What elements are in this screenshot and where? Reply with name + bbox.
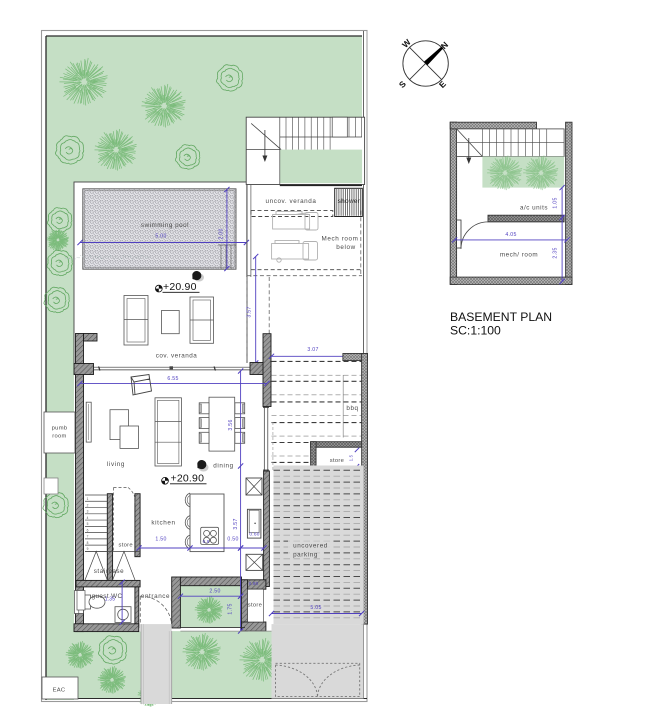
svg-text:store: store	[330, 458, 344, 464]
svg-text:3: 3	[87, 510, 89, 514]
svg-text:4: 4	[87, 516, 89, 520]
svg-text:cov. veranda: cov. veranda	[156, 353, 198, 360]
svg-text:SC:1:100: SC:1:100	[450, 324, 501, 338]
svg-text:1.35: 1.35	[105, 597, 116, 603]
svg-text:1.5: 1.5	[349, 454, 354, 461]
svg-text:pumb: pumb	[52, 426, 68, 432]
svg-text:9: 9	[87, 547, 89, 551]
svg-text:mech/ room: mech/ room	[500, 252, 538, 259]
svg-text:EAC: EAC	[53, 688, 66, 694]
svg-text:dining: dining	[213, 463, 233, 470]
svg-text:entrance: entrance	[141, 593, 170, 600]
svg-text:1.50: 1.50	[155, 537, 166, 543]
svg-text:4.05: 4.05	[505, 232, 516, 238]
svg-text:living: living	[107, 461, 125, 468]
svg-text:6: 6	[87, 528, 89, 532]
svg-text:5.00: 5.00	[155, 234, 166, 240]
svg-text:E: E	[437, 79, 448, 90]
svg-text:store: store	[248, 603, 262, 609]
svg-text:1.05: 1.05	[553, 197, 559, 208]
svg-text:0.60: 0.60	[249, 532, 259, 538]
svg-text:2.50: 2.50	[209, 589, 220, 595]
svg-text:0.50: 0.50	[227, 537, 238, 543]
svg-text:kitchen: kitchen	[151, 520, 175, 527]
svg-text:a/c units: a/c units	[520, 205, 548, 212]
svg-text:+20.90: +20.90	[163, 281, 197, 293]
svg-text:3.57: 3.57	[233, 518, 239, 529]
svg-text:0.90: 0.90	[249, 581, 259, 586]
svg-text:7: 7	[87, 535, 89, 539]
svg-text:staircase: staircase	[94, 568, 125, 575]
svg-text:3.56: 3.56	[228, 419, 234, 430]
svg-text:8: 8	[87, 541, 89, 545]
svg-text:3.07: 3.07	[307, 347, 318, 353]
svg-text:5: 5	[87, 522, 89, 526]
svg-text:store: store	[119, 543, 133, 549]
svg-text:uncov. veranda: uncov. veranda	[266, 198, 317, 205]
svg-text:2: 2	[87, 503, 89, 507]
svg-text:bbq: bbq	[346, 405, 358, 412]
svg-text:+20.90: +20.90	[171, 473, 205, 485]
svg-text:room: room	[52, 434, 66, 440]
svg-text:3.57: 3.57	[247, 306, 253, 317]
svg-text:W: W	[400, 36, 413, 49]
svg-text:6.55: 6.55	[167, 376, 178, 382]
svg-text:5.05: 5.05	[310, 605, 321, 611]
svg-text:uncovered: uncovered	[293, 543, 328, 550]
svg-text:Mech room: Mech room	[322, 236, 359, 243]
svg-text:parking: parking	[293, 552, 318, 559]
svg-text:1: 1	[87, 497, 89, 501]
svg-text:1.75: 1.75	[228, 603, 234, 614]
svg-text:S: S	[397, 79, 408, 90]
svg-text:BASEMENT PLAN: BASEMENT PLAN	[450, 310, 552, 324]
svg-text:shower: shower	[338, 198, 361, 205]
svg-text:below: below	[336, 244, 355, 251]
svg-text:2.00: 2.00	[219, 228, 225, 239]
svg-text:2.35: 2.35	[553, 247, 559, 258]
svg-text:0.9: 0.9	[203, 539, 210, 544]
svg-text:swimming pool: swimming pool	[141, 222, 189, 229]
